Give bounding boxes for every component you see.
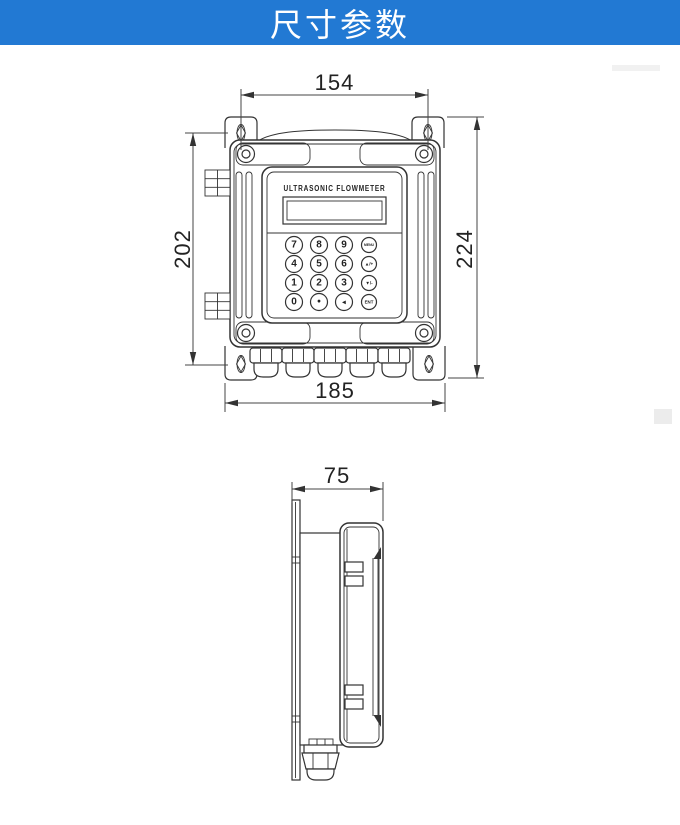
dimension-drawing: ULTRASONIC FLOWMETER 7 8 9 MENU 4 5 6 ▲/… bbox=[0, 45, 680, 825]
svg-text:5: 5 bbox=[316, 259, 322, 270]
terminal-block-top bbox=[205, 170, 230, 196]
svg-text:8: 8 bbox=[316, 240, 322, 251]
cable-gland bbox=[282, 348, 314, 377]
terminal-block-bottom bbox=[205, 293, 230, 319]
svg-text:1: 1 bbox=[291, 278, 297, 289]
lid-clip bbox=[345, 562, 363, 572]
svg-text:◀: ◀ bbox=[341, 300, 346, 305]
front-view: ULTRASONIC FLOWMETER 7 8 9 MENU 4 5 6 ▲/… bbox=[170, 70, 484, 412]
svg-text:6: 6 bbox=[341, 259, 347, 270]
dimension-bottom-185: 185 bbox=[225, 378, 445, 412]
svg-text:ENT: ENT bbox=[365, 300, 374, 305]
cable-gland bbox=[346, 348, 378, 377]
cable-glands bbox=[250, 348, 410, 377]
dim-label-bottom: 185 bbox=[315, 378, 355, 403]
dimension-depth-75: 75 bbox=[292, 463, 383, 521]
wall-mounting-plate bbox=[292, 500, 300, 780]
terminal-base-side bbox=[300, 533, 345, 745]
watermark-artifact bbox=[654, 409, 672, 424]
cable-gland bbox=[250, 348, 282, 377]
page: 尺寸参数 bbox=[0, 0, 680, 825]
dim-label-left: 202 bbox=[170, 229, 195, 269]
svg-text:2: 2 bbox=[316, 278, 322, 289]
svg-text:7: 7 bbox=[291, 240, 297, 251]
dim-label-top: 154 bbox=[315, 70, 355, 95]
svg-text:▲/+: ▲/+ bbox=[365, 262, 374, 267]
dimension-left-202: 202 bbox=[170, 133, 228, 365]
cable-gland-side bbox=[302, 739, 339, 780]
side-view: 75 bbox=[292, 463, 383, 780]
page-title: 尺寸参数 bbox=[270, 0, 410, 46]
lid-clip bbox=[345, 699, 363, 709]
svg-text:9: 9 bbox=[341, 240, 347, 251]
dimension-top-154: 154 bbox=[241, 70, 428, 150]
header-banner: 尺寸参数 bbox=[0, 0, 680, 45]
svg-text:•: • bbox=[317, 297, 321, 308]
lid-clip bbox=[345, 576, 363, 586]
dim-label-right: 224 bbox=[452, 229, 477, 269]
front-panel: ULTRASONIC FLOWMETER 7 8 9 MENU 4 5 6 ▲/… bbox=[262, 167, 407, 323]
lid-clip bbox=[345, 685, 363, 695]
device-label: ULTRASONIC FLOWMETER bbox=[284, 184, 386, 193]
svg-text:0: 0 bbox=[291, 297, 297, 308]
dim-label-depth: 75 bbox=[324, 463, 350, 488]
cable-gland bbox=[378, 348, 410, 377]
svg-text:MENU: MENU bbox=[364, 243, 375, 247]
svg-text:3: 3 bbox=[341, 278, 347, 289]
dimension-right-224: 224 bbox=[447, 117, 484, 378]
mounting-ear-bottom-right bbox=[413, 346, 445, 380]
svg-text:▼/-: ▼/- bbox=[365, 281, 373, 286]
watermark-artifact bbox=[612, 65, 660, 71]
svg-text:4: 4 bbox=[291, 259, 297, 270]
cable-gland bbox=[314, 348, 346, 377]
lid-side bbox=[340, 523, 383, 747]
